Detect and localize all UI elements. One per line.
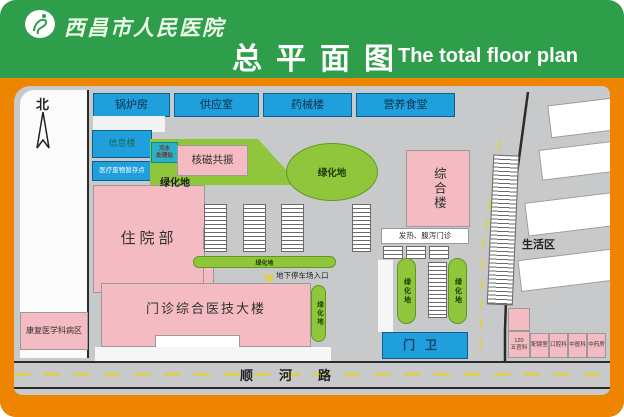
south-road-edge-north bbox=[14, 361, 610, 363]
building-tcm-clinic: 中医科 bbox=[568, 333, 587, 358]
page-title: 总平面图 bbox=[232, 34, 408, 78]
tcm-clinic-label: 中医科 bbox=[569, 342, 586, 348]
building-tcm-pharmacy: 中药房 bbox=[587, 333, 606, 358]
dental-clinic-label: 口腔科 bbox=[550, 342, 567, 348]
south-road-label: 顺河路 bbox=[240, 365, 357, 384]
floor-plan-poster: 西昌市人民医院 总平面图 The total floor plan 北 康复医学… bbox=[0, 0, 624, 417]
building-optical-shop: 配镜室 bbox=[530, 333, 549, 358]
living-area-label: 生活区 bbox=[522, 236, 555, 252]
building-er-ent: 120 五官科 bbox=[508, 331, 530, 358]
site-map: 北 康复医学科病区 锅炉房 供应室 药械楼 营养食堂 bbox=[14, 86, 610, 395]
tcm-pharmacy-label: 中药房 bbox=[588, 342, 605, 348]
hospital-name: 西昌市人民医院 bbox=[64, 12, 225, 42]
page-title-english: The total floor plan bbox=[398, 45, 578, 68]
building-dental-clinic: 口腔科 bbox=[549, 333, 568, 358]
south-road-edge-south bbox=[14, 387, 610, 389]
optical-shop-label: 配镜室 bbox=[531, 342, 548, 348]
building-clinic-annex bbox=[508, 308, 530, 331]
orange-frame: 北 康复医学科病区 锅炉房 供应室 药械楼 营养食堂 bbox=[0, 78, 624, 417]
ent-label: 五官科 bbox=[511, 345, 528, 351]
hospital-logo-icon bbox=[22, 6, 58, 42]
